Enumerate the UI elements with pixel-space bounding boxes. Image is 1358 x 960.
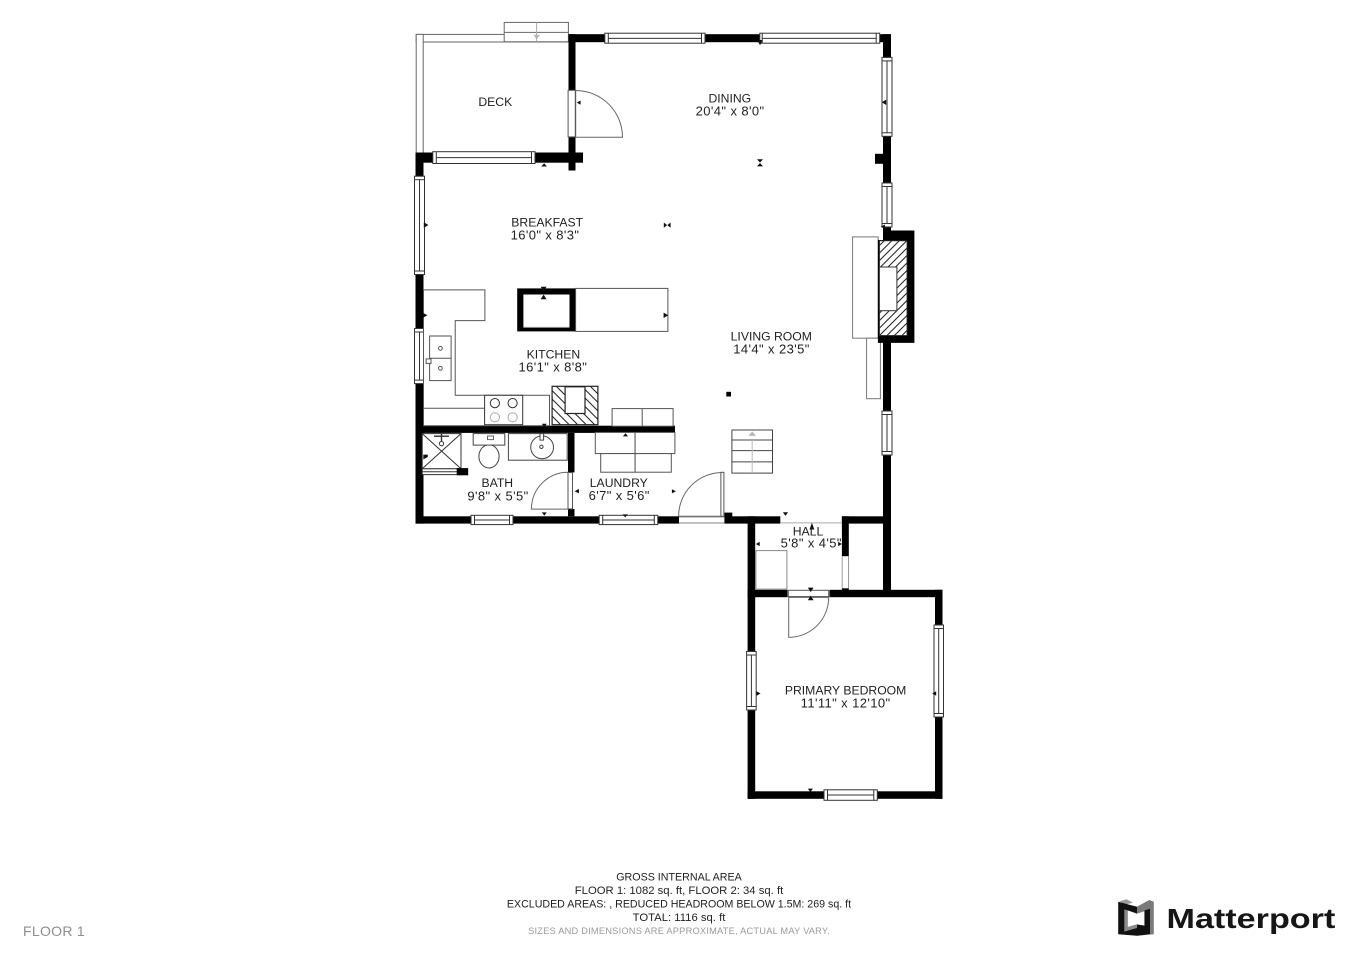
- svg-text:FLOOR 1: 1082 sq. ft, FLOOR 2:: FLOOR 1: 1082 sq. ft, FLOOR 2: 34 sq. ft: [575, 885, 784, 897]
- svg-text:14'4" x 23'5": 14'4" x 23'5": [733, 342, 810, 357]
- svg-text:9'8" x 5'5": 9'8" x 5'5": [467, 488, 528, 503]
- svg-text:5'8" x 4'5": 5'8" x 4'5": [781, 536, 842, 551]
- svg-text:16'0" x 8'3": 16'0" x 8'3": [511, 228, 580, 243]
- svg-text:11'11" x 12'10": 11'11" x 12'10": [801, 695, 891, 710]
- svg-text:SIZES AND DIMENSIONS ARE APPRO: SIZES AND DIMENSIONS ARE APPROXIMATE, AC…: [528, 926, 830, 936]
- svg-text:DECK: DECK: [478, 95, 512, 109]
- svg-text:EXCLUDED AREAS: , REDUCED HEAD: EXCLUDED AREAS: , REDUCED HEADROOM BELOW…: [507, 899, 851, 911]
- svg-text:TOTAL: 1116 sq. ft: TOTAL: 1116 sq. ft: [633, 912, 727, 924]
- svg-text:Matterport: Matterport: [1167, 903, 1336, 934]
- svg-text:20'4" x 8'0": 20'4" x 8'0": [696, 104, 765, 119]
- svg-text:6'7" x 5'6": 6'7" x 5'6": [589, 488, 650, 503]
- svg-text:FLOOR 1: FLOOR 1: [23, 923, 85, 939]
- svg-text:GROSS INTERNAL AREA: GROSS INTERNAL AREA: [616, 872, 742, 884]
- svg-text:16'1" x 8'8": 16'1" x 8'8": [518, 360, 587, 375]
